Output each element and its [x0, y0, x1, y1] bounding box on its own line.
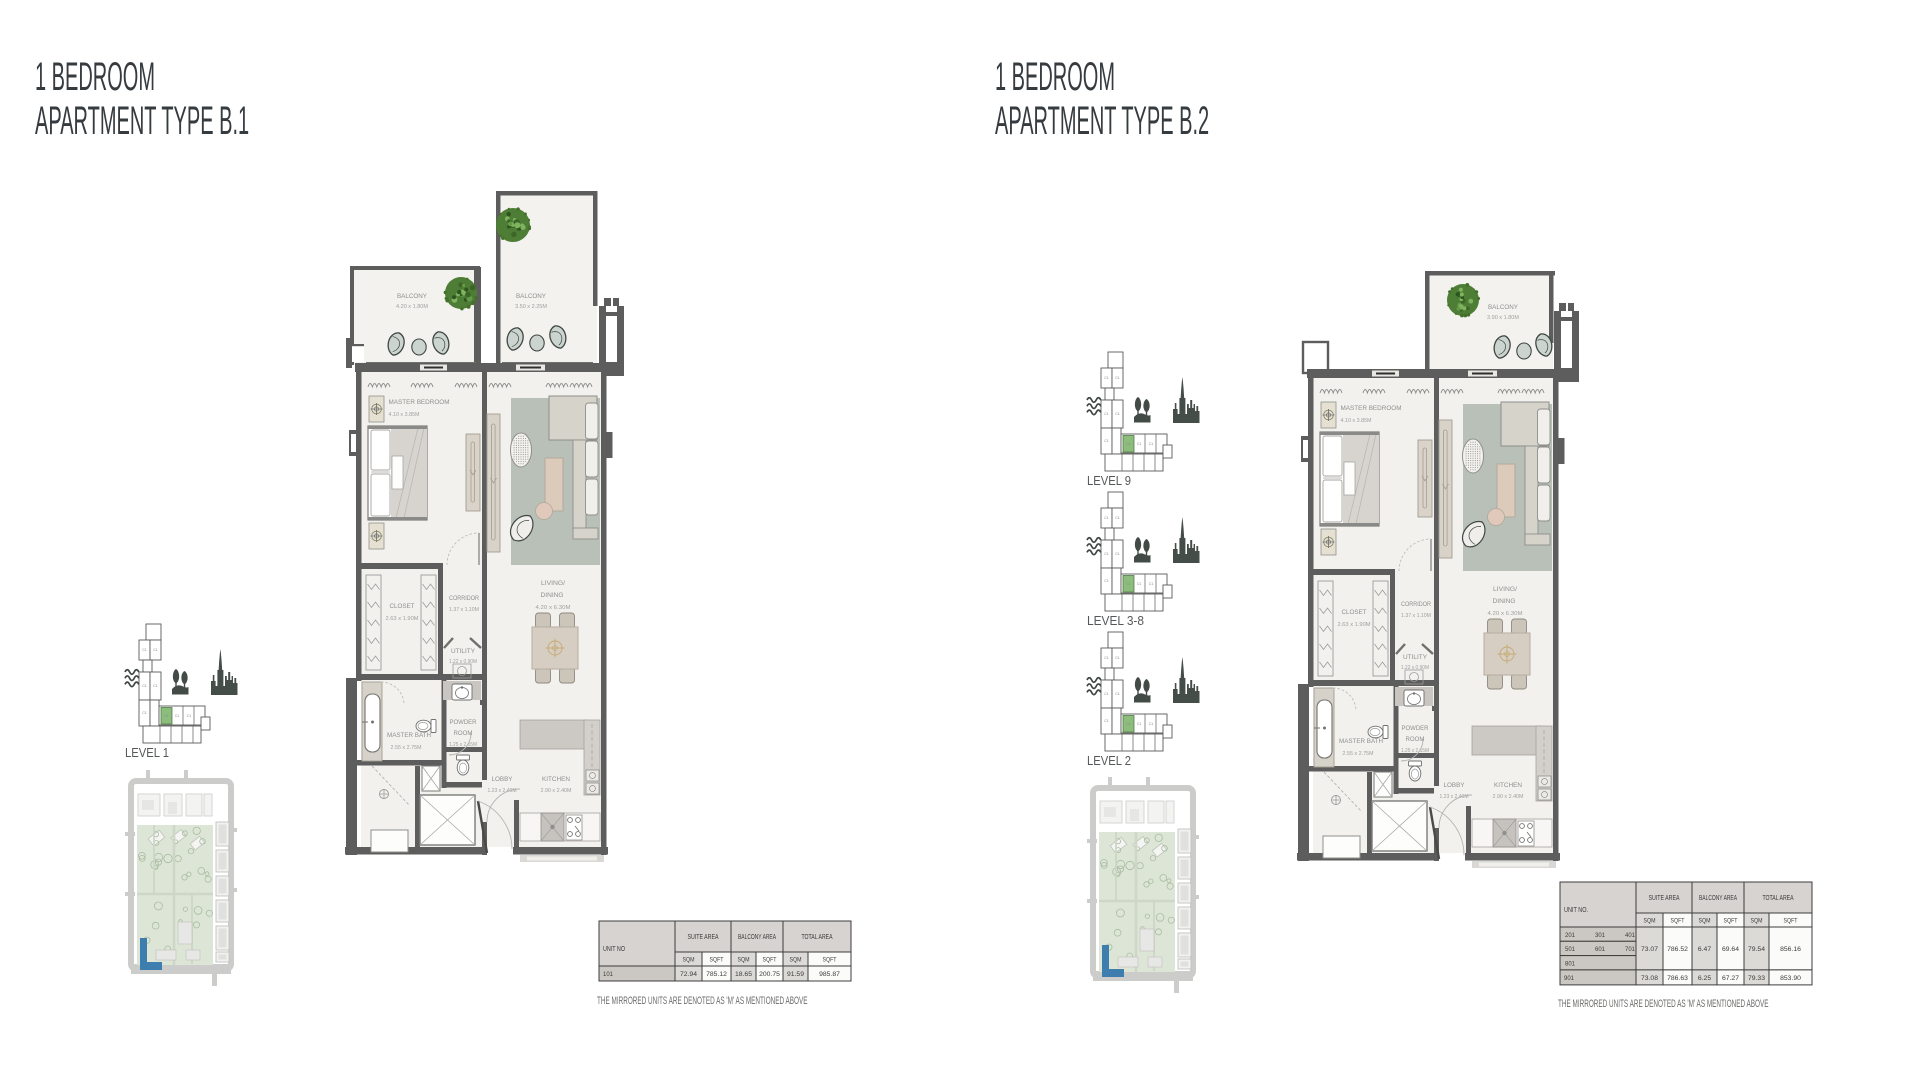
svg-text:201: 201	[1565, 932, 1575, 939]
svg-text:4.20 x 6.30M: 4.20 x 6.30M	[536, 605, 571, 611]
svg-text:BALCONY AREA: BALCONY AREA	[738, 934, 776, 941]
svg-text:C1: C1	[1104, 412, 1109, 416]
svg-text:C1: C1	[1115, 412, 1120, 416]
svg-text:C1: C1	[1126, 582, 1131, 586]
svg-text:SQFT: SQFT	[763, 956, 777, 963]
svg-text:1.25 x 2.15M: 1.25 x 2.15M	[1401, 748, 1429, 754]
svg-text:CORRIDOR: CORRIDOR	[1401, 601, 1431, 608]
svg-text:786.63: 786.63	[1667, 975, 1688, 982]
svg-text:C1: C1	[1115, 376, 1120, 380]
svg-text:1.37 x 1.10M: 1.37 x 1.10M	[1401, 613, 1431, 619]
svg-text:UTILITY: UTILITY	[1403, 654, 1427, 661]
svg-text:SQM: SQM	[683, 956, 695, 963]
svg-text:C1: C1	[142, 711, 147, 715]
svg-text:6.25: 6.25	[1698, 975, 1711, 982]
svg-text:POWDER: POWDER	[1402, 725, 1429, 732]
svg-text:MASTER BATH: MASTER BATH	[1339, 738, 1383, 745]
svg-text:786.52: 786.52	[1667, 946, 1688, 953]
svg-text:SQM: SQM	[738, 956, 750, 963]
svg-text:UNIT NO.: UNIT NO.	[1564, 907, 1588, 914]
svg-text:853.90: 853.90	[1780, 975, 1801, 982]
svg-text:MASTER BEDROOM: MASTER BEDROOM	[1341, 405, 1402, 412]
svg-text:LEVEL 2: LEVEL 2	[1087, 754, 1131, 768]
svg-text:4.10 x 3.85M: 4.10 x 3.85M	[1341, 418, 1372, 424]
svg-text:SQM: SQM	[1699, 917, 1711, 924]
svg-text:CLOSET: CLOSET	[1342, 609, 1367, 616]
svg-text:C1: C1	[1115, 552, 1120, 556]
svg-text:C1: C1	[164, 714, 169, 718]
svg-text:ROOM: ROOM	[454, 730, 473, 737]
svg-text:C1: C1	[1137, 442, 1142, 446]
svg-text:69.64: 69.64	[1722, 946, 1739, 953]
svg-text:C1: C1	[1137, 722, 1142, 726]
svg-text:67.27: 67.27	[1722, 975, 1739, 982]
svg-text:SQFT: SQFT	[1671, 917, 1685, 924]
svg-text:BALCONY: BALCONY	[397, 293, 428, 300]
svg-text:CLOSET: CLOSET	[390, 603, 415, 610]
svg-text:79.33: 79.33	[1748, 975, 1765, 982]
svg-text:SQM: SQM	[790, 956, 802, 963]
svg-text:C1: C1	[1126, 442, 1131, 446]
svg-text:1.37 x 1.10M: 1.37 x 1.10M	[449, 607, 479, 613]
svg-text:UTILITY: UTILITY	[451, 648, 475, 655]
svg-text:501: 501	[1565, 946, 1575, 953]
svg-text:SUITE AREA: SUITE AREA	[1649, 895, 1680, 902]
svg-text:MASTER BATH: MASTER BATH	[387, 732, 431, 739]
svg-text:CORRIDOR: CORRIDOR	[449, 595, 479, 602]
svg-text:LOBBY: LOBBY	[1444, 782, 1466, 789]
svg-text:701: 701	[1625, 946, 1635, 953]
svg-text:785.12: 785.12	[706, 971, 727, 978]
svg-text:LOBBY: LOBBY	[492, 776, 514, 783]
svg-text:985.87: 985.87	[819, 971, 840, 978]
svg-text:KITCHEN: KITCHEN	[542, 776, 570, 783]
svg-text:C1: C1	[1126, 722, 1131, 726]
svg-text:4.20 x 6.30M: 4.20 x 6.30M	[1488, 611, 1523, 617]
svg-text:101: 101	[603, 971, 613, 978]
svg-text:KITCHEN: KITCHEN	[1494, 782, 1522, 789]
svg-text:3.50 x 2.25M: 3.50 x 2.25M	[515, 304, 547, 310]
svg-text:BALCONY: BALCONY	[516, 293, 547, 300]
svg-text:2.63 x 1.90M: 2.63 x 1.90M	[386, 616, 419, 622]
svg-text:301: 301	[1595, 932, 1605, 939]
svg-text:SQFT: SQFT	[1724, 917, 1738, 924]
svg-text:LIVING/: LIVING/	[541, 580, 565, 587]
svg-text:601: 601	[1595, 946, 1605, 953]
svg-text:LEVEL 3-8: LEVEL 3-8	[1087, 614, 1144, 628]
svg-text:MASTER BEDROOM: MASTER BEDROOM	[389, 399, 450, 406]
svg-text:C1: C1	[1115, 656, 1120, 660]
svg-text:DINING: DINING	[1493, 598, 1516, 605]
svg-text:200.75: 200.75	[759, 971, 780, 978]
svg-text:2.55 x 2.75M: 2.55 x 2.75M	[1343, 751, 1374, 757]
svg-text:79.54: 79.54	[1748, 946, 1765, 953]
svg-text:401: 401	[1625, 932, 1635, 939]
svg-text:BALCONY: BALCONY	[1488, 304, 1519, 311]
svg-text:ROOM: ROOM	[1406, 736, 1425, 743]
svg-text:C1: C1	[1104, 656, 1109, 660]
svg-text:1.23 x 2.40M: 1.23 x 2.40M	[488, 788, 517, 794]
svg-text:C1: C1	[1115, 516, 1120, 520]
svg-text:SQFT: SQFT	[823, 956, 837, 963]
svg-text:SQFT: SQFT	[710, 956, 724, 963]
svg-text:1.25 x 2.15M: 1.25 x 2.15M	[449, 742, 477, 748]
svg-text:2.90 x 2.40M: 2.90 x 2.40M	[541, 788, 572, 794]
svg-text:C1: C1	[1115, 692, 1120, 696]
svg-text:73.07: 73.07	[1641, 946, 1658, 953]
svg-text:C1: C1	[142, 648, 147, 652]
svg-text:SUITE AREA: SUITE AREA	[688, 934, 719, 941]
svg-text:TOTAL AREA: TOTAL AREA	[1763, 895, 1794, 902]
svg-text:1.23 x 2.40M: 1.23 x 2.40M	[1440, 794, 1469, 800]
svg-text:91.59: 91.59	[787, 971, 804, 978]
svg-text:C1: C1	[1104, 552, 1109, 556]
svg-text:2.63 x 1.90M: 2.63 x 1.90M	[1338, 622, 1371, 628]
svg-text:C1: C1	[1137, 582, 1142, 586]
svg-text:2.90 x 2.40M: 2.90 x 2.40M	[1493, 794, 1524, 800]
svg-text:BALCONY AREA: BALCONY AREA	[1699, 895, 1737, 902]
svg-text:SQM: SQM	[1751, 917, 1763, 924]
svg-text:DINING: DINING	[541, 592, 564, 599]
svg-text:SQM: SQM	[1644, 917, 1656, 924]
svg-text:POWDER: POWDER	[450, 719, 477, 726]
svg-text:C1: C1	[153, 648, 158, 652]
svg-text:C1: C1	[175, 714, 180, 718]
svg-text:C1: C1	[1104, 439, 1109, 443]
svg-text:856.16: 856.16	[1780, 946, 1801, 953]
svg-text:6.47: 6.47	[1698, 946, 1711, 953]
svg-text:4.10 x 3.85M: 4.10 x 3.85M	[389, 412, 420, 418]
svg-text:73.08: 73.08	[1641, 975, 1658, 982]
svg-text:4.20 x 1.80M: 4.20 x 1.80M	[396, 304, 428, 310]
svg-text:2.55 x 2.75M: 2.55 x 2.75M	[391, 745, 422, 751]
svg-text:C1: C1	[1149, 582, 1154, 586]
svg-text:C1: C1	[142, 684, 147, 688]
svg-text:C1: C1	[1104, 516, 1109, 520]
svg-text:3.90 x 1.80M: 3.90 x 1.80M	[1487, 315, 1519, 321]
svg-text:C1: C1	[1149, 442, 1154, 446]
svg-text:C1: C1	[187, 714, 192, 718]
svg-text:LIVING/: LIVING/	[1493, 586, 1517, 593]
svg-text:C1: C1	[153, 684, 158, 688]
svg-text:LEVEL 1: LEVEL 1	[125, 746, 169, 760]
svg-text:LEVEL 9: LEVEL 9	[1087, 474, 1131, 488]
svg-text:901: 901	[1564, 975, 1574, 982]
svg-text:C1: C1	[1104, 579, 1109, 583]
svg-text:C1: C1	[1104, 376, 1109, 380]
svg-text:TOTAL AREA: TOTAL AREA	[802, 934, 833, 941]
svg-text:C1: C1	[1149, 722, 1154, 726]
svg-text:18.65: 18.65	[735, 971, 752, 978]
svg-text:C1: C1	[1104, 692, 1109, 696]
svg-text:C1: C1	[1104, 719, 1109, 723]
svg-text:SQFT: SQFT	[1784, 917, 1798, 924]
svg-text:801: 801	[1565, 960, 1575, 967]
svg-text:UNIT NO: UNIT NO	[603, 946, 625, 953]
svg-text:72.94: 72.94	[680, 971, 697, 978]
